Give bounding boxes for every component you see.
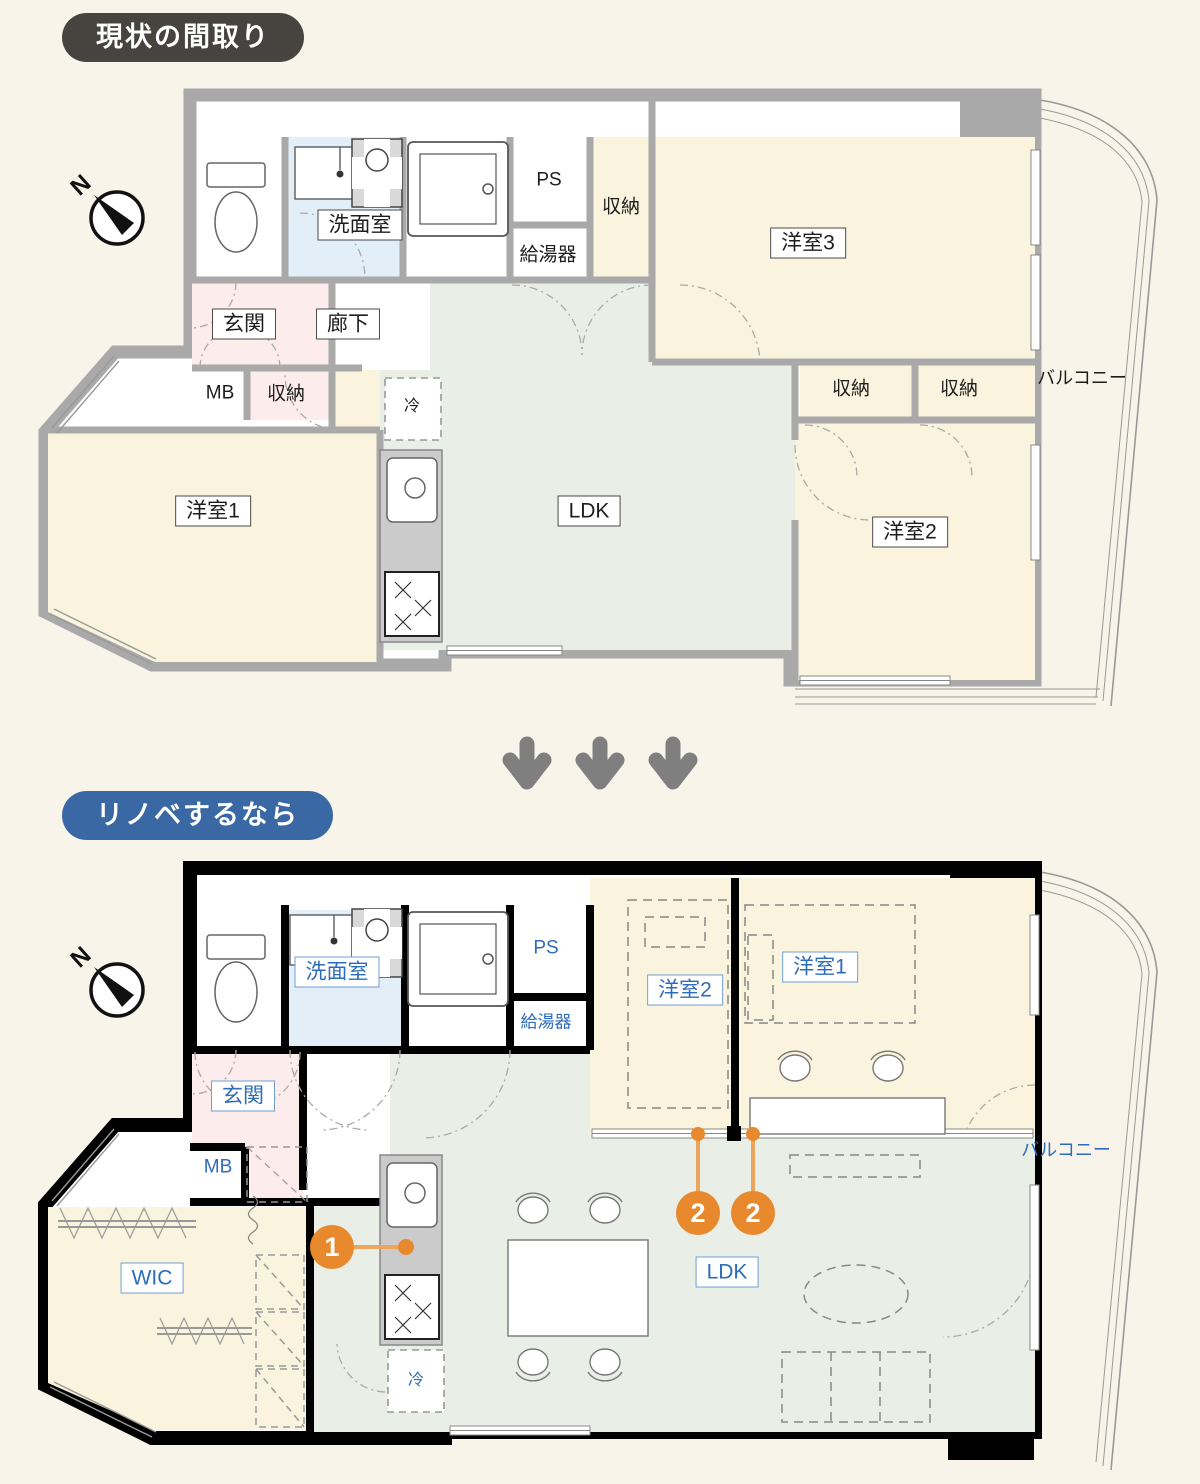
down-arrow-icon (510, 744, 544, 782)
room-label-wic-renovated: WIC (121, 1263, 184, 1294)
room-label-ps-current: PS (536, 171, 561, 190)
room-label-ps-renovated: PS (533, 939, 558, 958)
room-label-ldk-current: LDK (558, 496, 621, 527)
room-label-closet-right-current: 収納 (940, 380, 978, 399)
compass-current: N (66, 170, 143, 244)
fridge-label-current: 冷 (404, 399, 420, 415)
room-label-closet-top-current: 収納 (602, 198, 640, 217)
room-label-hallway-current: 廊下 (316, 309, 380, 340)
room-label-bedroom3-current: 洋室3 (770, 228, 846, 259)
room-label-water-heater-current: 給湯器 (519, 246, 576, 265)
down-arrow-icon (583, 744, 617, 782)
fridge-label-renovated: 冷 (408, 1373, 424, 1389)
marker-2-partition-left: 2 (676, 1191, 720, 1235)
room-label-entrance-renovated: 玄関 (211, 1081, 275, 1112)
marker-1-kitchen: 1 (310, 1225, 354, 1269)
room-label-bedroom1-renovated: 洋室1 (782, 952, 858, 983)
room-label-meter-box-renovated: MB (204, 1158, 233, 1177)
room-label-meter-box-current: MB (206, 384, 235, 403)
room-label-washroom-renovated: 洗面室 (295, 957, 380, 988)
compass-renovated: N (66, 942, 143, 1016)
room-label-closet-entrance-current: 収納 (267, 385, 305, 404)
room-label-ldk-renovated: LDK (696, 1257, 759, 1288)
down-arrow-icon (656, 744, 690, 782)
room-label-bedroom2-current: 洋室2 (872, 517, 948, 548)
floor-plan-drawing: N (0, 0, 1200, 1484)
renovated-plan-badge: リノベするなら (62, 791, 333, 840)
room-label-entrance-current: 玄関 (212, 309, 276, 340)
compass-n-label: N (66, 942, 97, 974)
room-label-washroom-current: 洗面室 (318, 210, 403, 241)
current-plan-badge: 現状の間取り (62, 13, 304, 62)
marker-2-partition-right: 2 (731, 1191, 775, 1235)
floor-plan-comparison: N (0, 0, 1200, 1484)
balcony-label-current: バルコニー (1037, 369, 1127, 387)
room-label-water-heater-renovated: 給湯器 (521, 1014, 572, 1031)
compass-n-label: N (66, 170, 97, 202)
transition-arrows (510, 744, 690, 782)
room-label-closet-left-current: 収納 (832, 380, 870, 399)
balcony-label-renovated: バルコニー (1021, 1141, 1111, 1159)
room-label-bedroom2-renovated: 洋室2 (647, 975, 723, 1006)
room-label-bedroom1-current: 洋室1 (175, 496, 251, 527)
